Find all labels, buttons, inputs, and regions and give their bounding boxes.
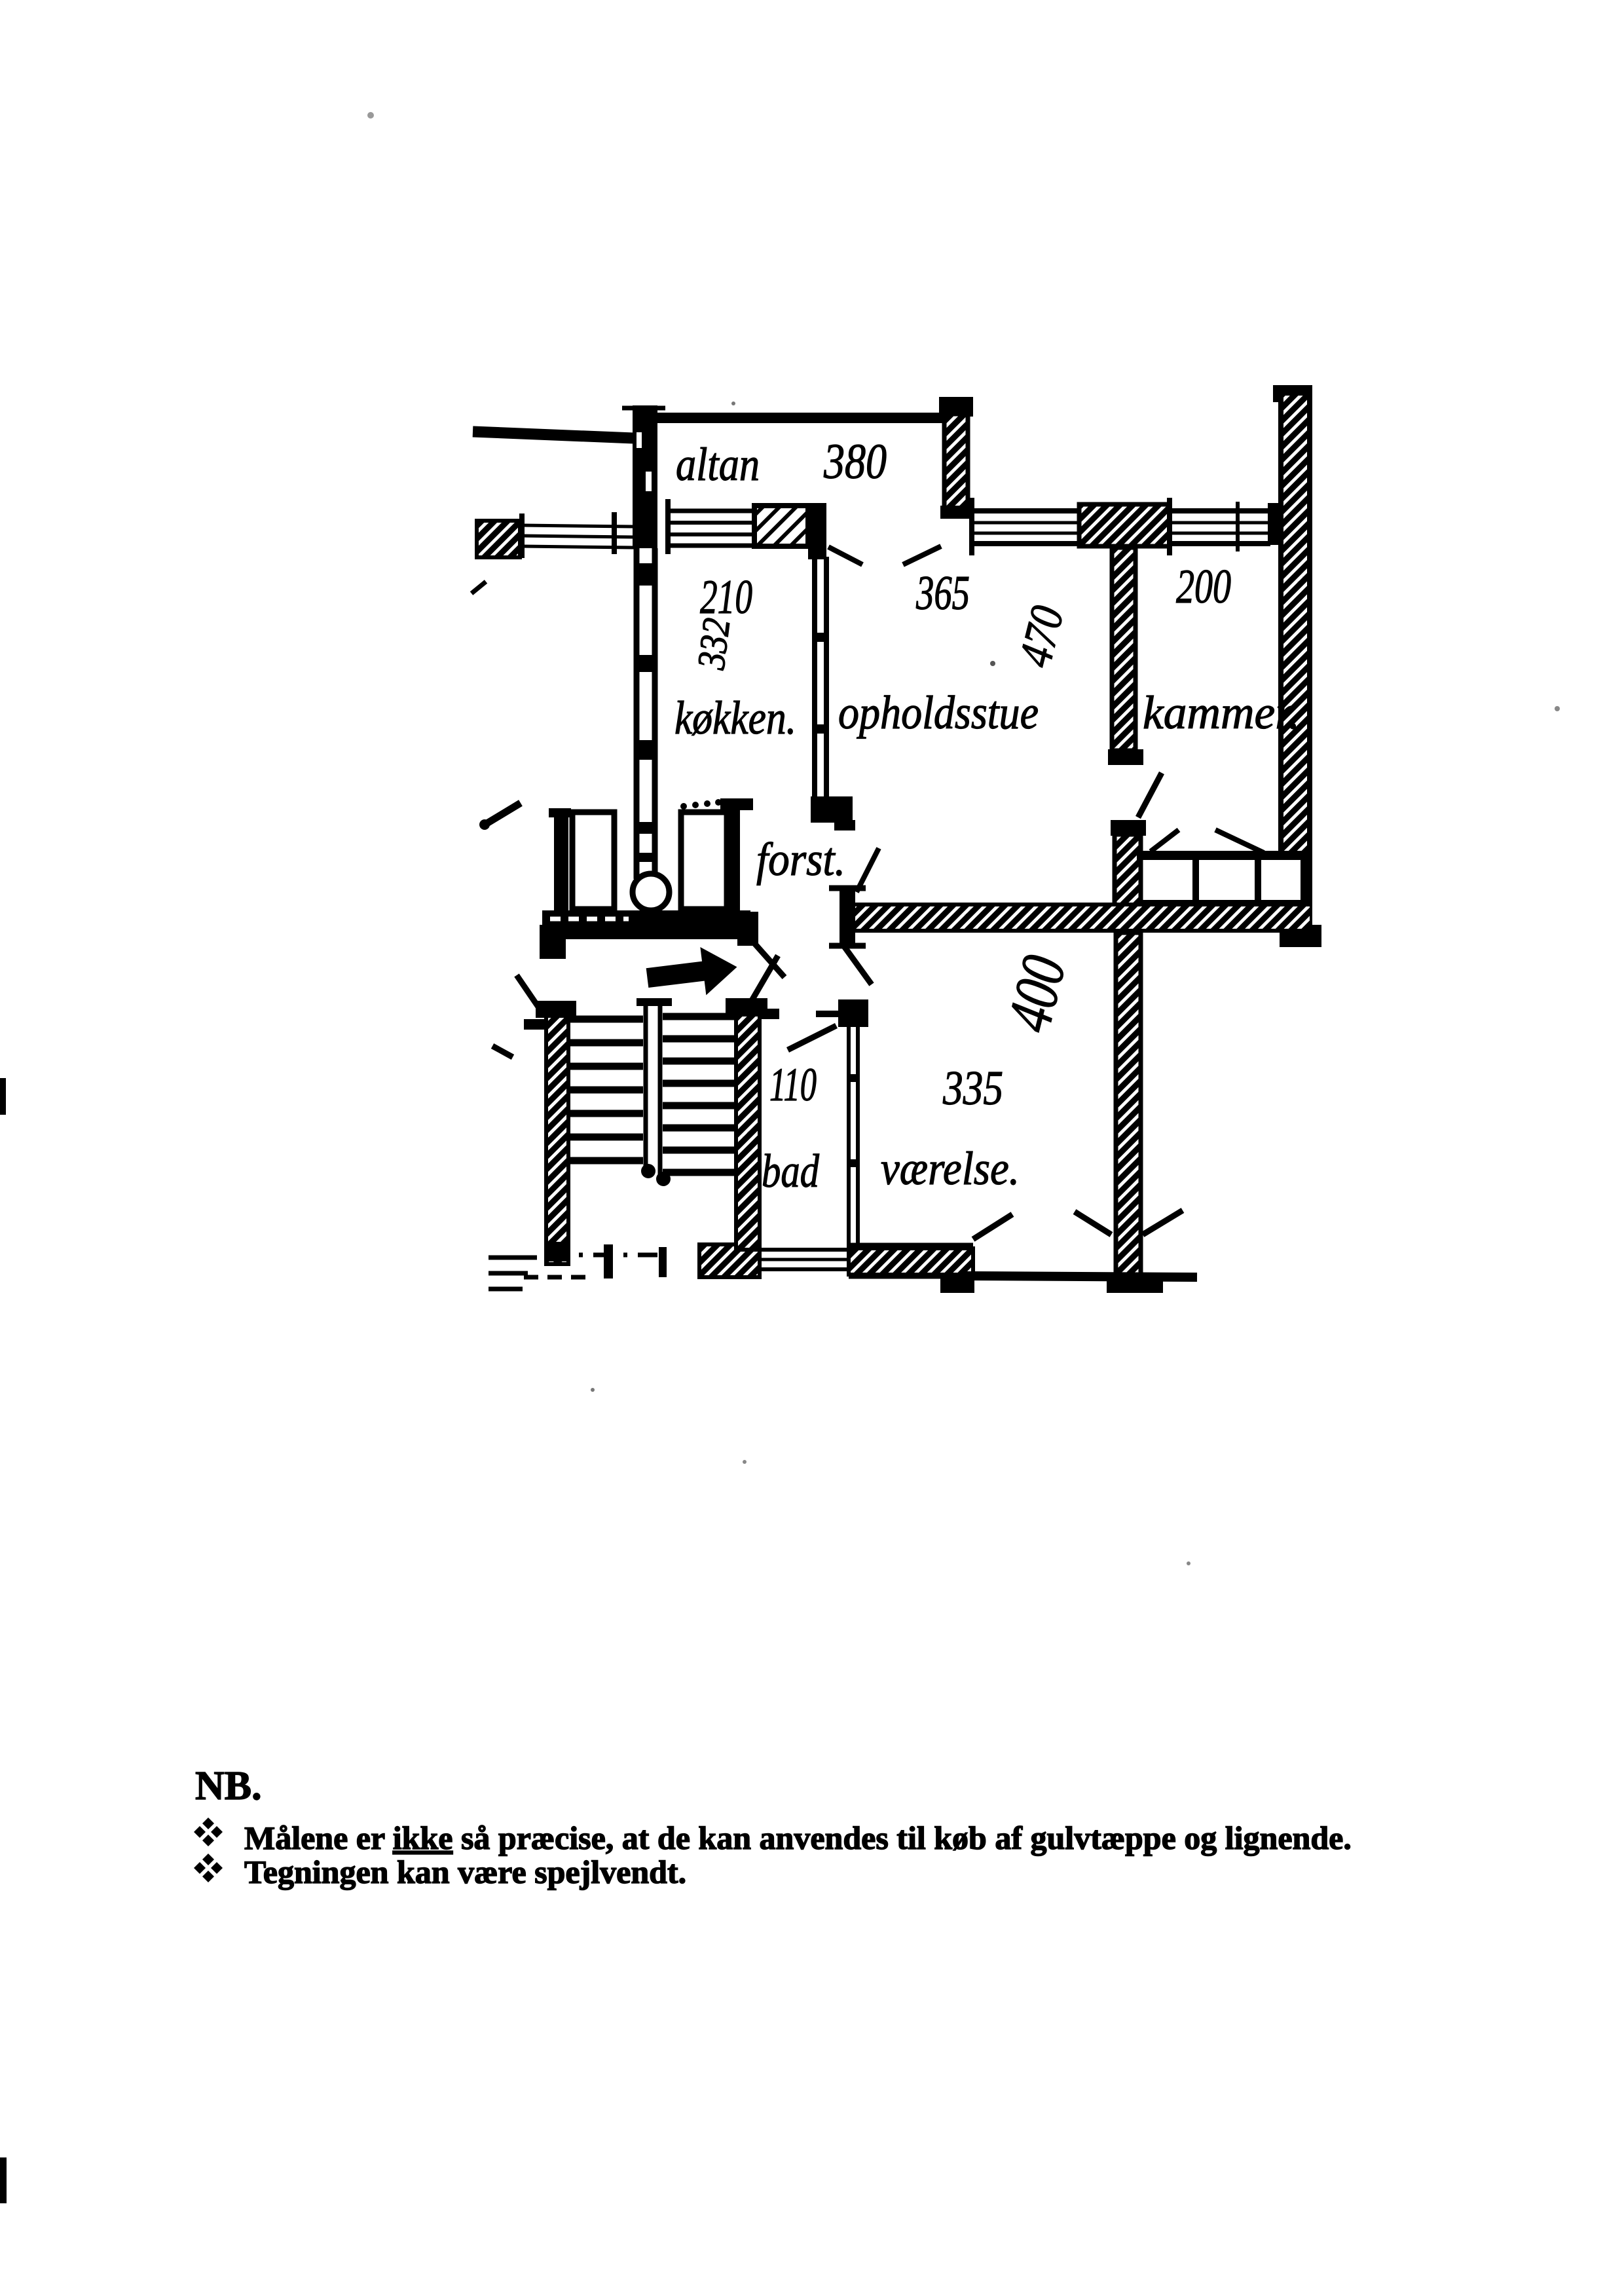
- svg-text:200: 200: [1176, 560, 1231, 614]
- svg-text:altan: altan: [676, 438, 760, 491]
- svg-text:forst.: forst.: [756, 833, 845, 886]
- svg-text:værelse.: værelse.: [881, 1142, 1020, 1195]
- svg-text:210: 210: [700, 570, 752, 624]
- svg-text:kammer.: kammer.: [1143, 686, 1300, 739]
- svg-text:NB.: NB.: [195, 1764, 262, 1808]
- svg-text:Målene er ikke så præcise, at: Målene er ikke så præcise, at de kan anv…: [244, 1819, 1352, 1856]
- svg-text:335: 335: [942, 1062, 1003, 1115]
- svg-text:Tegningen kan være spejlvendt.: Tegningen kan være spejlvendt.: [244, 1854, 686, 1890]
- svg-text:køkken.: køkken.: [674, 692, 796, 744]
- svg-text:opholdsstue: opholdsstue: [838, 686, 1039, 739]
- svg-text:110: 110: [769, 1058, 817, 1111]
- svg-text:332: 332: [689, 616, 738, 672]
- svg-text:365: 365: [915, 567, 970, 620]
- svg-text:bad: bad: [762, 1145, 820, 1197]
- svg-text:380: 380: [823, 434, 887, 489]
